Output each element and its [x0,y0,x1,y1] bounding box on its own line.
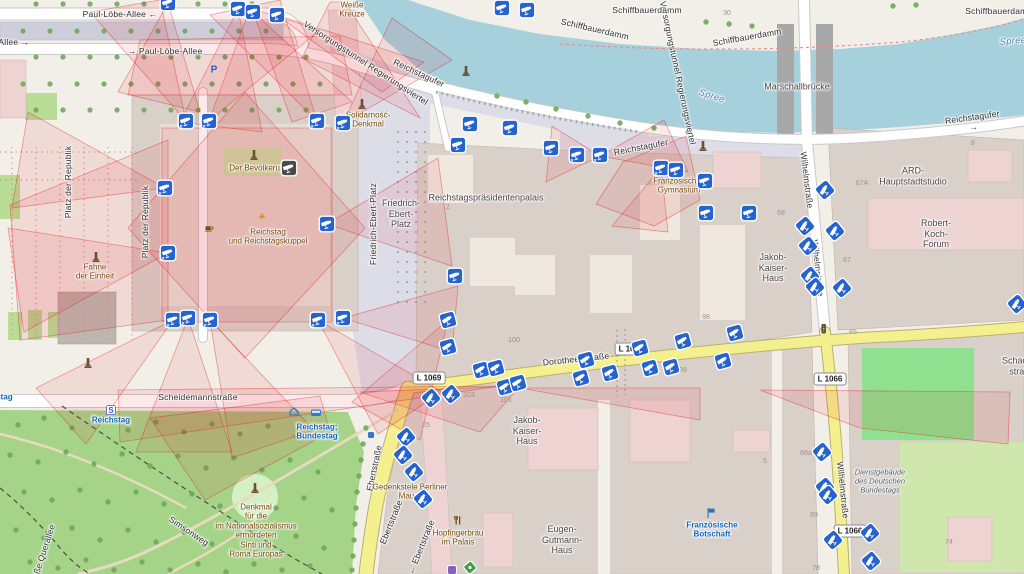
camera-viewshed [546,126,600,182]
camera-viewshed [520,388,700,420]
camera-viewshed [162,128,332,322]
camera-viewsheds-layer [0,0,1024,574]
map-canvas[interactable]: Paul-Löbe-Allee ←Allee →→ Paul-Löbe-Alle… [0,0,1024,574]
camera-viewshed [760,390,1010,444]
